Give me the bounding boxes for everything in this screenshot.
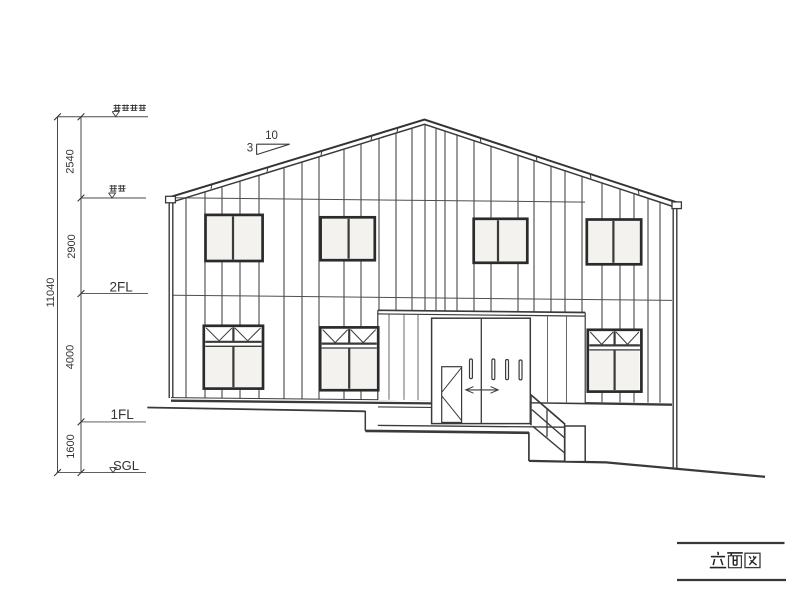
svg-text:2FL: 2FL — [110, 280, 134, 295]
svg-text:2900: 2900 — [66, 234, 78, 258]
svg-text:4000: 4000 — [65, 345, 77, 369]
svg-text:SGL: SGL — [113, 458, 139, 473]
svg-text:10: 10 — [265, 130, 278, 142]
svg-text:2540: 2540 — [65, 149, 77, 173]
svg-text:1FL: 1FL — [111, 407, 135, 422]
svg-text:3: 3 — [247, 143, 253, 155]
svg-text:1600: 1600 — [65, 434, 77, 458]
svg-text:11040: 11040 — [45, 278, 57, 308]
